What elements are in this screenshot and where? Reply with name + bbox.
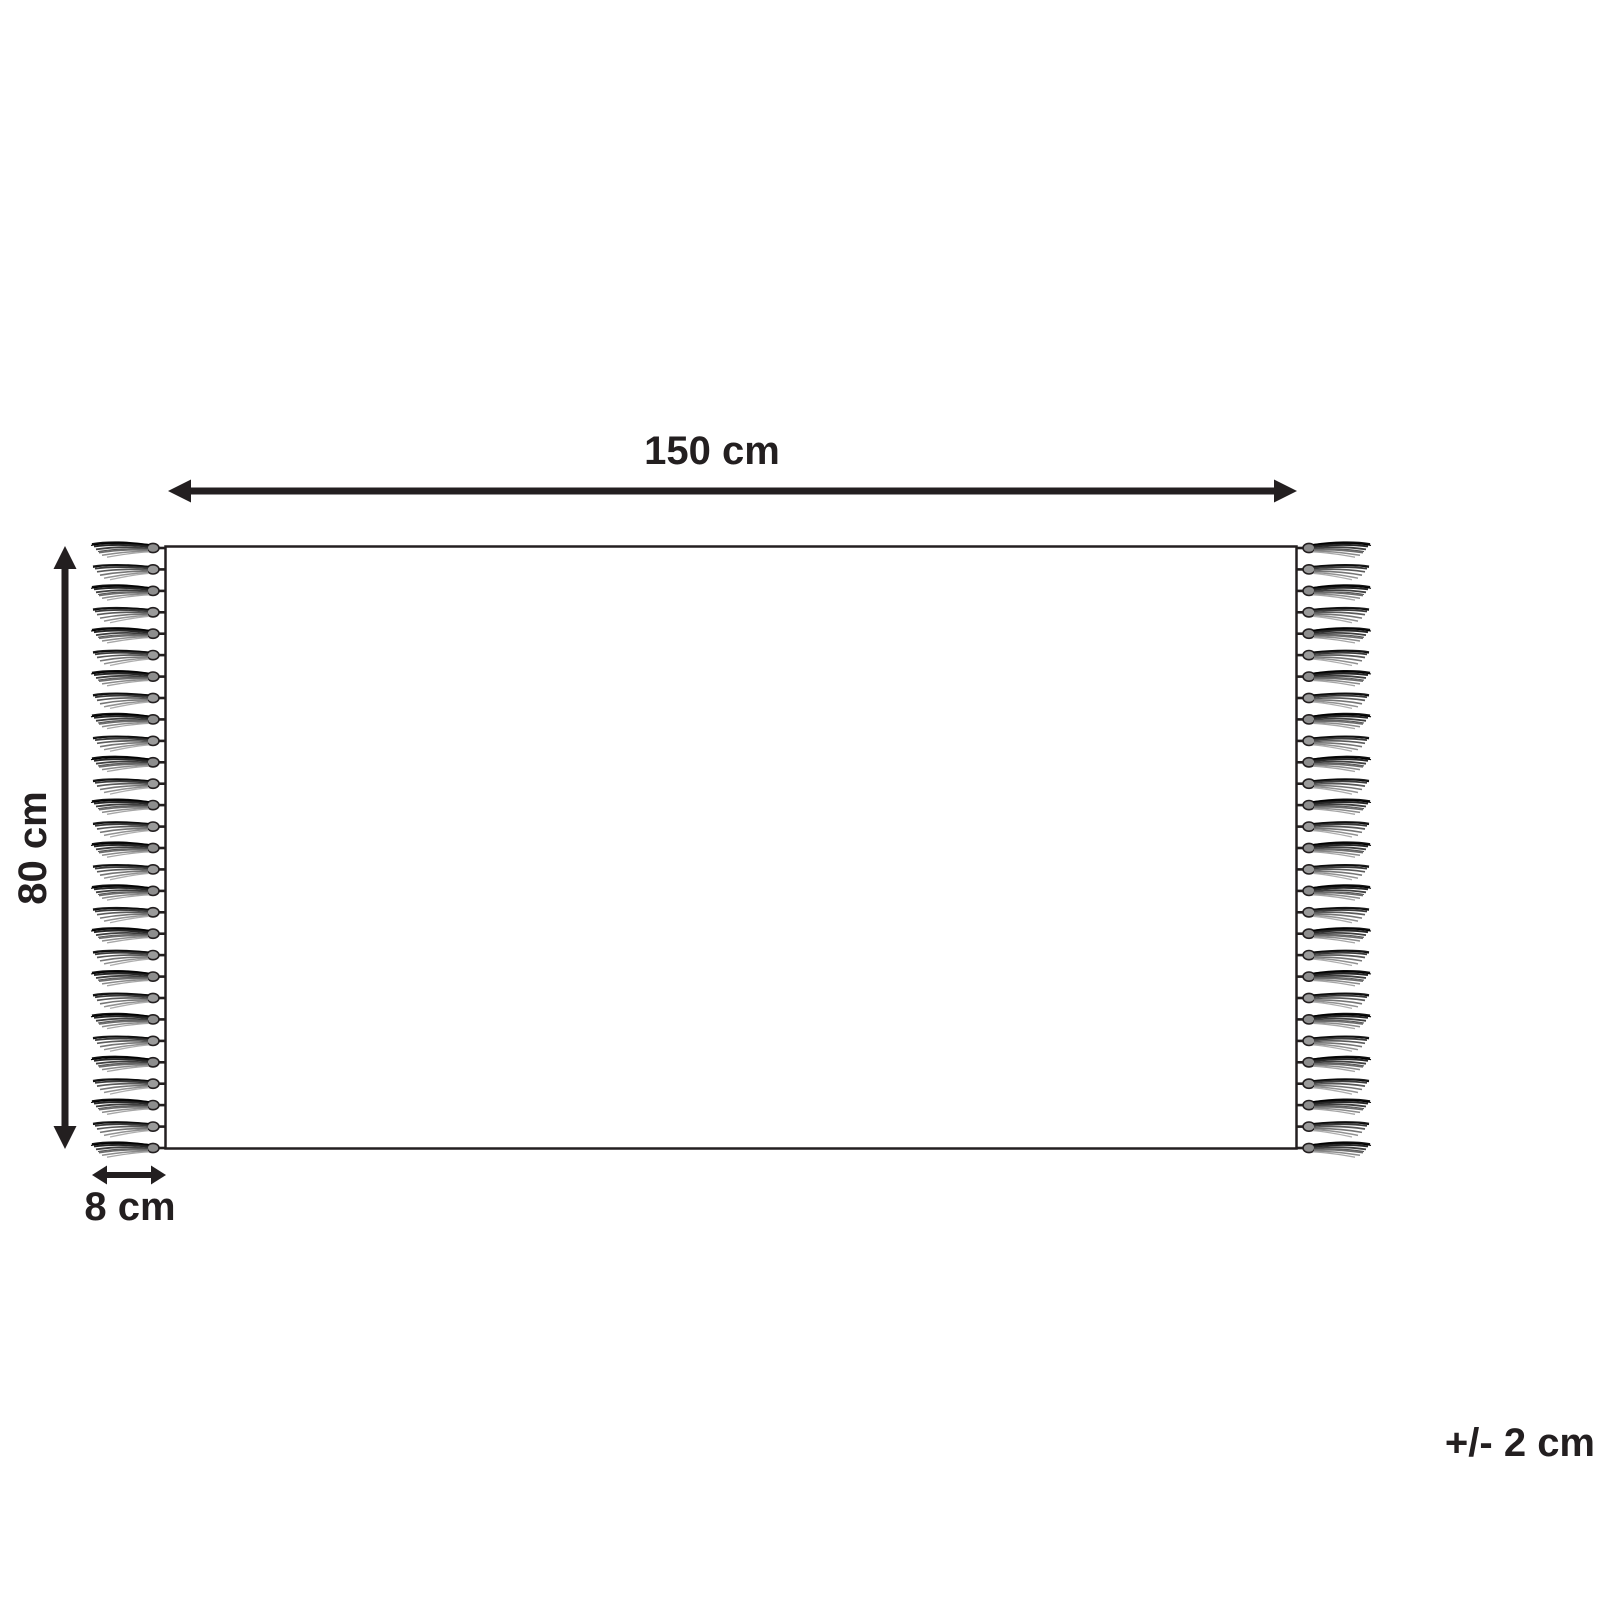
fringe-tassel [1297, 779, 1369, 794]
fringe-tassel [91, 1057, 165, 1072]
fringe-tassel [93, 993, 165, 1008]
fringe-tassel [1297, 993, 1369, 1008]
fringe-tassel [93, 736, 165, 751]
fringe-dimension-label: 8 cm [30, 1184, 230, 1230]
rug-dimension-diagram: 150 cm 80 cm 8 cm +/- 2 cm [0, 0, 1599, 1600]
tolerance-label: +/- 2 cm [1385, 1420, 1595, 1466]
fringe-tassel [1297, 928, 1371, 943]
fringe-tassel [91, 1100, 165, 1115]
height-dimension-label: 80 cm [10, 748, 56, 948]
fringe-tassel [1297, 1079, 1369, 1094]
fringe-tassel [91, 757, 165, 772]
fringe-tassel [91, 628, 165, 643]
fringe-tassel [1297, 843, 1371, 858]
fringe-tassel [1297, 1100, 1371, 1115]
width-dimension-label: 150 cm [612, 428, 812, 474]
fringe-tassel [1297, 586, 1371, 601]
arrowhead-up-icon [54, 546, 77, 569]
fringe-tassel [91, 1143, 165, 1158]
fringe-tassel [91, 800, 165, 815]
fringe-tassel [1297, 1143, 1371, 1158]
arrowhead-left-icon [168, 480, 191, 503]
fringe-tassel [91, 671, 165, 686]
fringe-tassel [93, 1036, 165, 1051]
fringe-tassel [1297, 714, 1371, 729]
width-dimension-arrow [168, 480, 1297, 503]
fringe-tassel [1297, 800, 1371, 815]
fringe-tassel [1297, 543, 1371, 558]
fringe-tassel [93, 565, 165, 580]
fringe-tassel [1297, 971, 1371, 986]
rug-outline [166, 547, 1297, 1149]
fringe-tassel [1297, 1036, 1369, 1051]
fringe-right [1297, 543, 1371, 1158]
fringe-left [91, 543, 165, 1158]
fringe-tassel [93, 951, 165, 966]
fringe-tassel [91, 886, 165, 901]
fringe-tassel [93, 865, 165, 880]
fringe-tassel [91, 714, 165, 729]
fringe-dimension-arrow [92, 1166, 166, 1185]
fringe-tassel [1297, 822, 1369, 837]
fringe-tassel [1297, 628, 1371, 643]
fringe-tassel [1297, 951, 1369, 966]
fringe-tassel [1297, 757, 1371, 772]
diagram-canvas [0, 0, 1599, 1600]
fringe-tassel [93, 651, 165, 666]
fringe-tassel [1297, 1014, 1371, 1029]
fringe-tassel [91, 928, 165, 943]
fringe-tassel [1297, 865, 1369, 880]
height-dimension-arrow [54, 546, 77, 1149]
fringe-tassel [93, 822, 165, 837]
fringe-tassel [93, 1122, 165, 1137]
fringe-tassel [91, 971, 165, 986]
fringe-tassel [1297, 1122, 1369, 1137]
fringe-tassel [91, 586, 165, 601]
arrowhead-left-icon [92, 1166, 107, 1185]
fringe-tassel [1297, 651, 1369, 666]
fringe-tassel [1297, 908, 1369, 923]
fringe-tassel [93, 693, 165, 708]
fringe-tassel [1297, 608, 1369, 623]
fringe-tassel [93, 608, 165, 623]
fringe-tassel [91, 543, 165, 558]
fringe-tassel [1297, 671, 1371, 686]
arrowhead-down-icon [54, 1126, 77, 1149]
fringe-tassel [1297, 736, 1369, 751]
fringe-tassel [93, 779, 165, 794]
arrowhead-right-icon [1274, 480, 1297, 503]
fringe-tassel [1297, 693, 1369, 708]
fringe-tassel [91, 1014, 165, 1029]
fringe-tassel [93, 908, 165, 923]
arrowhead-right-icon [151, 1166, 166, 1185]
fringe-tassel [1297, 565, 1369, 580]
fringe-tassel [91, 843, 165, 858]
fringe-tassel [1297, 1057, 1371, 1072]
fringe-tassel [93, 1079, 165, 1094]
fringe-tassel [1297, 886, 1371, 901]
